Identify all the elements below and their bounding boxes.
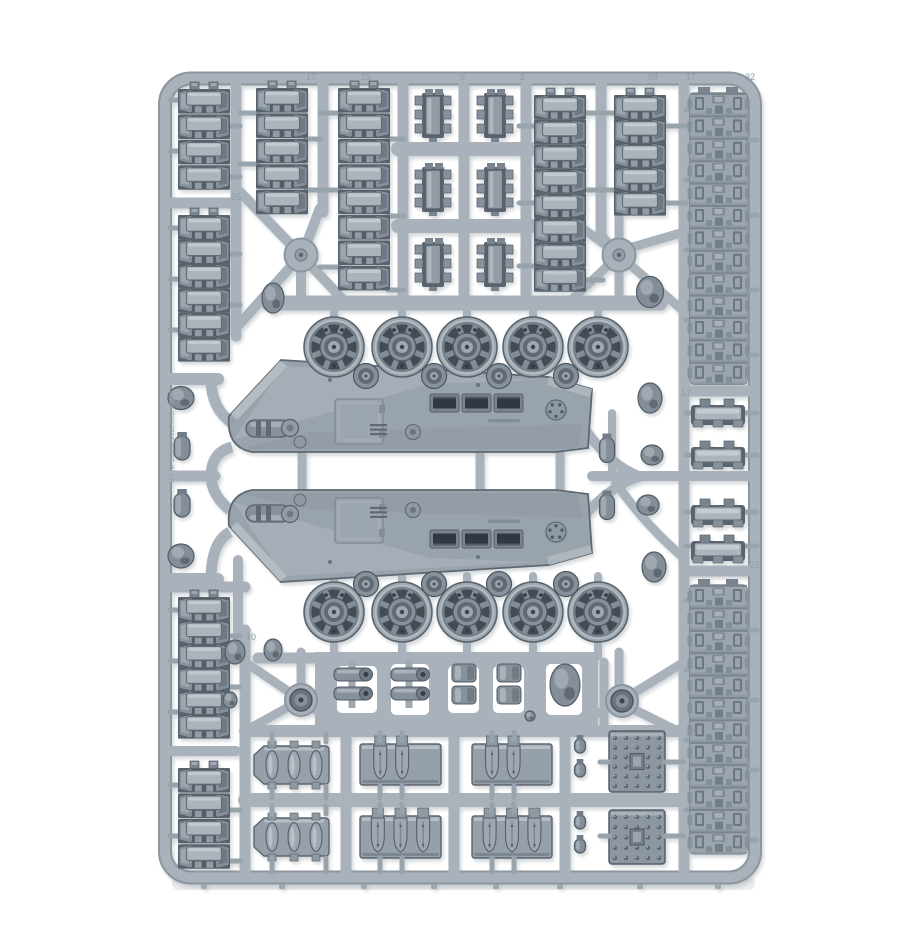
svg-text:25: 25	[750, 560, 760, 570]
svg-text:45: 45	[686, 728, 696, 738]
svg-text:23: 23	[361, 72, 371, 82]
svg-text:17: 17	[306, 72, 316, 82]
svg-text:17: 17	[686, 72, 696, 82]
svg-text:25: 25	[231, 192, 241, 202]
svg-text:2: 2	[520, 72, 525, 82]
svg-text:W40K GW 2015 MADE IN UK: W40K GW 2015 MADE IN UK	[167, 390, 174, 484]
svg-text:88: 88	[648, 72, 658, 82]
svg-text:10: 10	[246, 632, 256, 642]
svg-text:9: 9	[460, 72, 465, 82]
svg-text:17: 17	[681, 388, 691, 398]
svg-text:32: 32	[745, 72, 755, 82]
